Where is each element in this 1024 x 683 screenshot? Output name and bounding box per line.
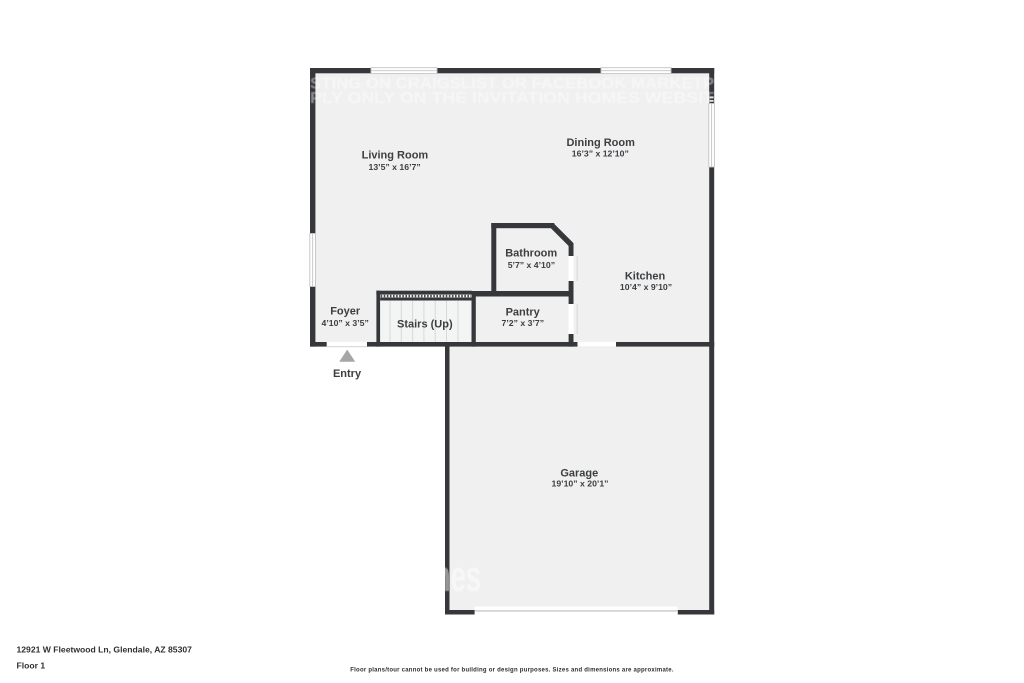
- svg-text:4’10” x 3’5”: 4’10” x 3’5”: [322, 318, 369, 328]
- svg-text:Living Room: Living Room: [362, 150, 429, 162]
- svg-text:Floor 1: Floor 1: [17, 660, 46, 670]
- svg-text:Stairs (Up): Stairs (Up): [397, 319, 453, 331]
- svg-text:13’5” x 16’7”: 13’5” x 16’7”: [369, 162, 421, 172]
- svg-text:16’3” x 12’10”: 16’3” x 12’10”: [572, 149, 629, 159]
- svg-text:Entry: Entry: [333, 368, 362, 380]
- svg-text:Kitchen: Kitchen: [625, 271, 666, 283]
- svg-text:Bathroom: Bathroom: [505, 248, 557, 260]
- svg-text:Floor plans/tour cannot be use: Floor plans/tour cannot be used for buil…: [350, 667, 674, 673]
- svg-text:19’10” x 20’1”: 19’10” x 20’1”: [552, 479, 609, 489]
- svg-text:Dining Room: Dining Room: [566, 137, 635, 149]
- svg-text:10’4” x 9’10”: 10’4” x 9’10”: [620, 282, 672, 292]
- svg-text:12921 W Fleetwood Ln, Glendale: 12921 W Fleetwood Ln, Glendale, AZ 85307: [17, 644, 193, 654]
- svg-text:mes: mes: [426, 551, 481, 600]
- svg-text:Foyer: Foyer: [330, 306, 361, 318]
- svg-text:PLY ONLY ON THE INVITATION HOM: PLY ONLY ON THE INVITATION HOMES WEBSIT: [310, 90, 715, 107]
- svg-text:7’2” x 3’7”: 7’2” x 3’7”: [502, 318, 545, 328]
- svg-text:Pantry: Pantry: [506, 306, 541, 318]
- svg-text:5’7” x 4’10”: 5’7” x 4’10”: [508, 260, 555, 270]
